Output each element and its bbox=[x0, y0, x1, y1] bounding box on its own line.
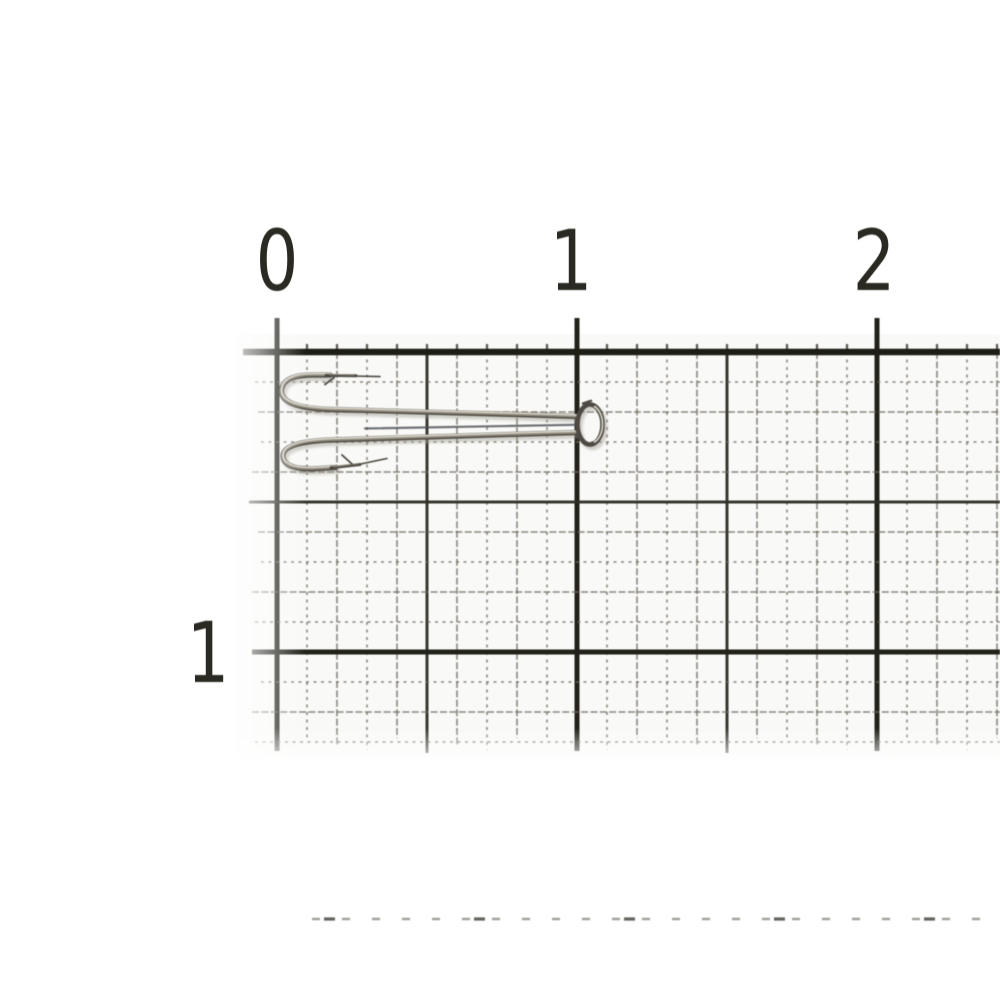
ruler-label-0cm: 0 bbox=[256, 219, 299, 303]
ruler-label-1cm: 1 bbox=[550, 219, 593, 303]
photo-scene-svg bbox=[0, 0, 1000, 1000]
ruler-side-label-1cm: 1 bbox=[187, 611, 230, 695]
ruler-label-2cm: 2 bbox=[853, 219, 896, 303]
photo-canvas: 0 1 2 1 bbox=[0, 0, 1000, 1000]
